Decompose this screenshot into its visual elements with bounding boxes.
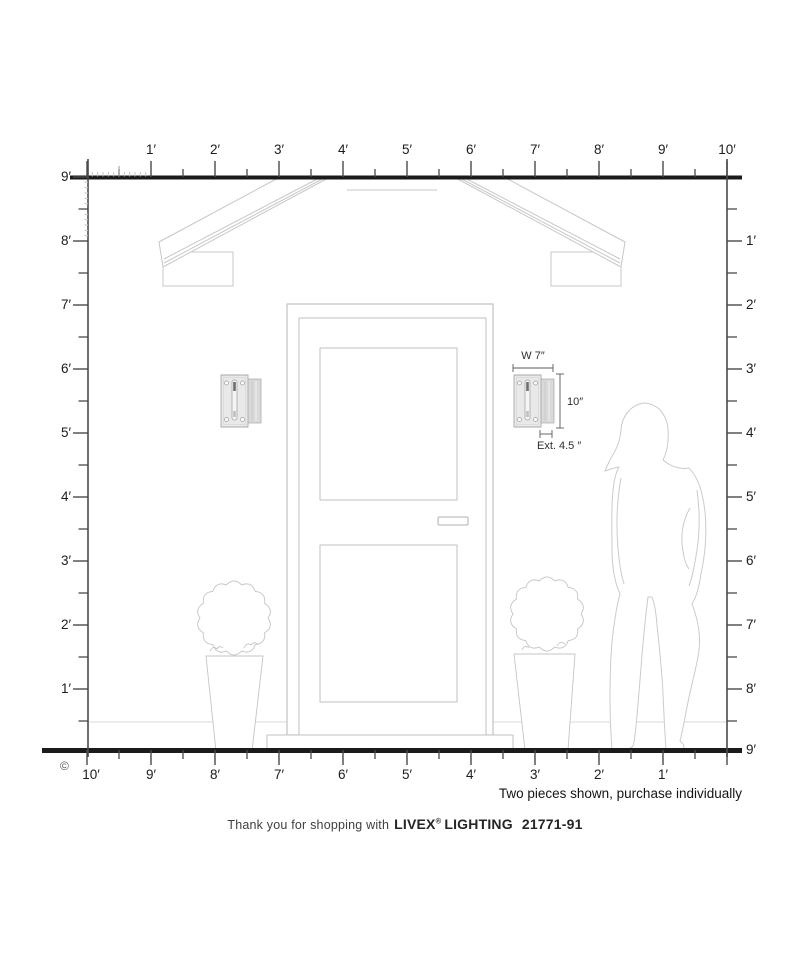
ruler-label: 4′ [338, 142, 349, 157]
sconce-screw [241, 418, 245, 422]
roof-trim-right-2 [463, 177, 620, 259]
wall-sconce-right [514, 375, 554, 427]
sconce-shade-side [247, 379, 261, 423]
height-dim-label: 10″ [567, 396, 583, 408]
width-dim-label: W 7″ [521, 350, 545, 362]
ruler-label: 3′ [61, 553, 72, 568]
human-figure [605, 403, 706, 749]
sprig-right-a [522, 646, 529, 650]
sconce-screw [518, 381, 522, 385]
right-ruler-ticks [727, 209, 742, 721]
ruler-label: 7′ [746, 617, 757, 632]
ruler-label: 5′ [746, 489, 757, 504]
sconce-screw [225, 418, 229, 422]
front-door [287, 304, 493, 735]
door-window-panel [320, 348, 457, 500]
shrub-left [198, 581, 271, 655]
ruler-label: 5′ [61, 425, 72, 440]
top-ruler-labels: 1′ 2′ 3′ 4′ 5′ 6′ 7′ 8′ 9′ 10′ [146, 142, 736, 157]
sconce-slot-socket [526, 382, 529, 391]
sconce-shade-side [540, 379, 554, 423]
footer-thanks-line: Thank you for shopping withLIVEX®LIGHTIN… [0, 816, 800, 832]
ruler-label: 8′ [746, 681, 757, 696]
ruler-label: 6′ [61, 361, 72, 376]
bottom-ruler-ticks [87, 750, 727, 765]
bottom-ruler-bar [42, 748, 742, 753]
planter-right [511, 577, 584, 750]
left-ruler-ticks [73, 177, 88, 721]
ruler-label: 7′ [61, 297, 72, 312]
purchase-note: Two pieces shown, purchase individually [499, 786, 742, 801]
pot-left [206, 656, 263, 751]
ruler-label: 5′ [402, 142, 413, 157]
ruler-label: 3′ [274, 142, 285, 157]
ruler-label: 6′ [466, 142, 477, 157]
ruler-label: 9′ [658, 142, 669, 157]
roof-band-left [159, 177, 330, 267]
ruler-label: 1′ [61, 681, 72, 696]
ruler-label: 9′ [146, 767, 157, 782]
sconce-slot-socket [233, 382, 236, 391]
door-handle [438, 517, 468, 525]
ruler-label: 9′ [61, 169, 72, 184]
left-ruler-labels: 9′ 8′ 7′ 6′ 5′ 4′ 3′ 2′ 1′ [61, 169, 72, 696]
ruler-label: 1′ [746, 233, 757, 248]
shrub-right [511, 577, 584, 651]
roof-trim-right-1 [458, 177, 620, 263]
ruler-label: 4′ [466, 767, 477, 782]
ruler-label: 6′ [746, 553, 757, 568]
ruler-label: 3′ [746, 361, 757, 376]
ruler-label: 8′ [594, 142, 605, 157]
scene: W 7″ 10″ Ext. 4.5 ″ [89, 177, 726, 751]
planter-left [198, 581, 271, 751]
copyright-symbol: © [60, 759, 69, 773]
roof-trim-left-2 [164, 177, 321, 259]
ruler-label: 6′ [338, 767, 349, 782]
ruler-label: 2′ [210, 142, 221, 157]
sconce-screw [225, 381, 229, 385]
roof-band-right [454, 177, 625, 267]
right-ruler-labels: 1′ 2′ 3′ 4′ 5′ 6′ 7′ 8′ 9′ [746, 233, 757, 757]
ruler-label: 2′ [746, 297, 757, 312]
ruler-label: 2′ [61, 617, 72, 632]
figure-outline [605, 403, 706, 749]
ruler-label: 7′ [530, 142, 541, 157]
sconce-screw [534, 418, 538, 422]
ruler-label: 4′ [61, 489, 72, 504]
product-scale-diagram: W 7″ 10″ Ext. 4.5 ″ 1′ 2′ 3′ 4′ 5′ 6′ 7′… [0, 0, 800, 977]
ruler-label: 10′ [718, 142, 736, 157]
ruler-label: 10′ [82, 767, 100, 782]
ruler-label: 5′ [402, 767, 413, 782]
ruler-label: 3′ [530, 767, 541, 782]
ruler-label: 8′ [210, 767, 221, 782]
sconce-screw [241, 381, 245, 385]
registered-mark-icon: ® [436, 816, 442, 825]
wall-sconce-left [221, 375, 261, 427]
ruler-label: 9′ [746, 742, 757, 757]
pot-right [514, 654, 575, 750]
footer-thanks-text: Thank you for shopping with [227, 818, 389, 832]
portico-roof [159, 177, 625, 286]
model-number: 21771-91 [522, 816, 583, 832]
sconce-slot-base [526, 411, 529, 417]
top-ruler-bar [70, 176, 742, 180]
sconce-slot-base [233, 411, 236, 417]
bottom-ruler-labels: 10′ 9′ 8′ 7′ 6′ 5′ 4′ 3′ 2′ 1′ [82, 767, 668, 782]
ruler-label: 1′ [146, 142, 157, 157]
sconce-screw [534, 381, 538, 385]
brand-lighting: LIGHTING [444, 816, 512, 832]
brand-livex: LIVEX [394, 816, 435, 832]
sconce-screw [518, 418, 522, 422]
door-lower-panel [320, 545, 457, 702]
ruler-label: 2′ [594, 767, 605, 782]
extension-dim-label: Ext. 4.5 ″ [537, 440, 581, 452]
top-ruler-ticks [87, 161, 727, 177]
roof-trim-left-1 [164, 177, 326, 263]
ruler-label: 4′ [746, 425, 757, 440]
brand-logo: LIVEX®LIGHTING [394, 816, 513, 832]
ruler-label: 1′ [658, 767, 669, 782]
ruler-label: 8′ [61, 233, 72, 248]
ruler-label: 7′ [274, 767, 285, 782]
door-step [267, 735, 513, 749]
